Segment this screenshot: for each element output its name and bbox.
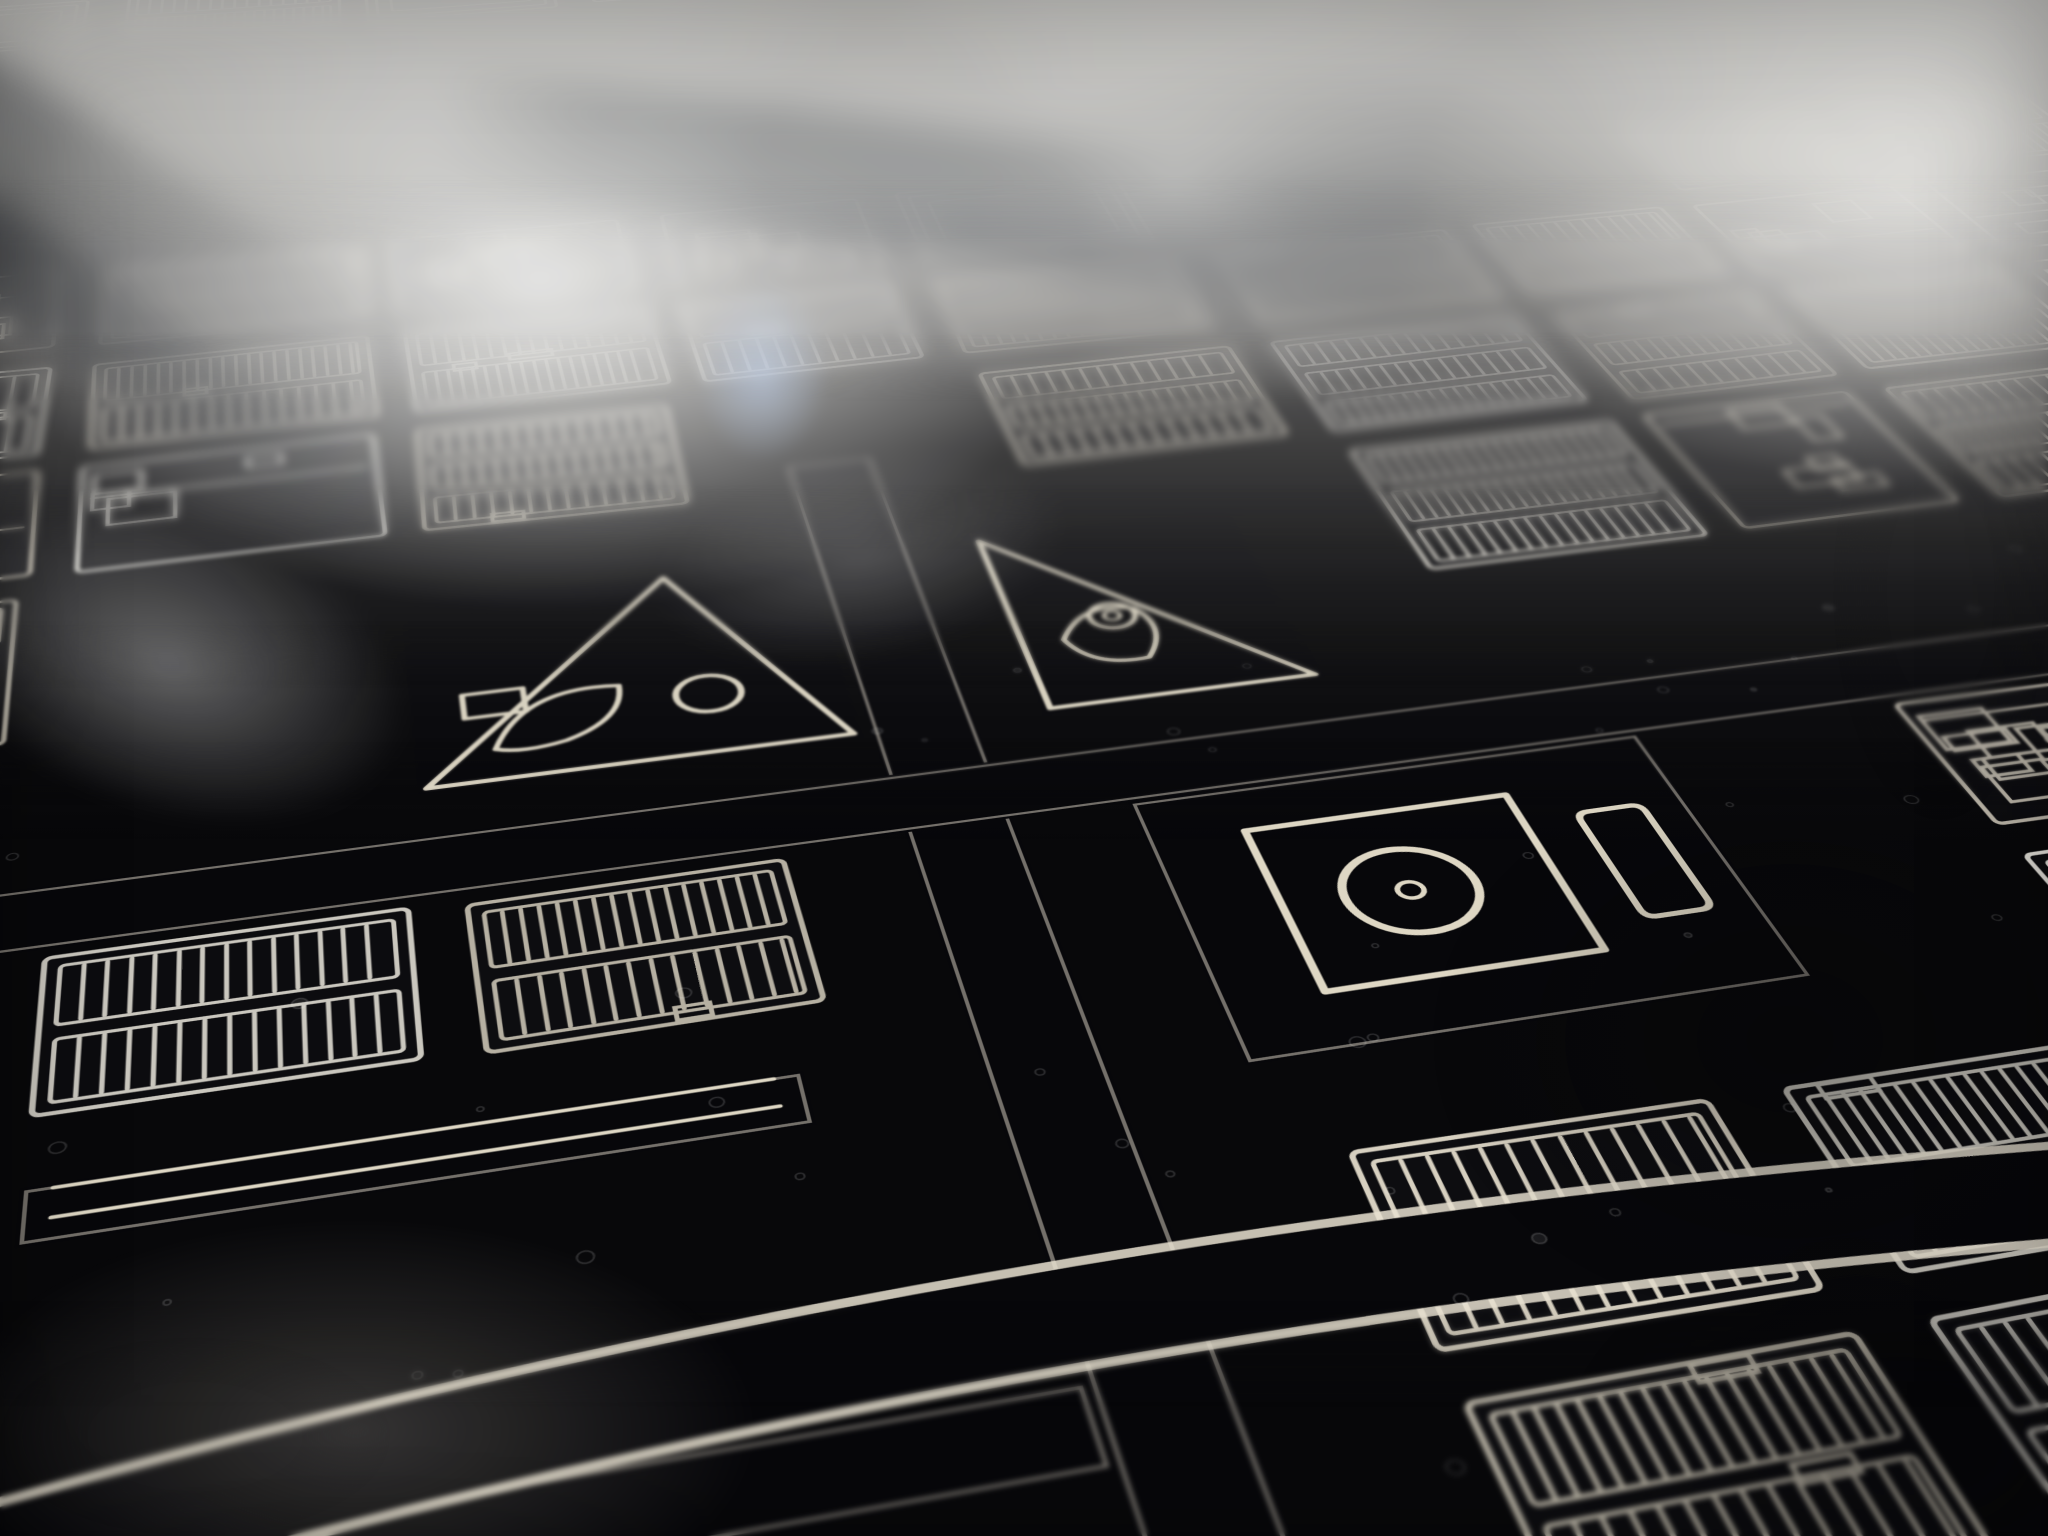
engraved-map-drawing [0, 0, 2048, 1536]
metal-map-plane [0, 0, 2048, 1536]
camera-perspective [0, 0, 2048, 1536]
macro-photo-engraved-city-map: Macro photograph of a city street map en… [0, 0, 2048, 1536]
